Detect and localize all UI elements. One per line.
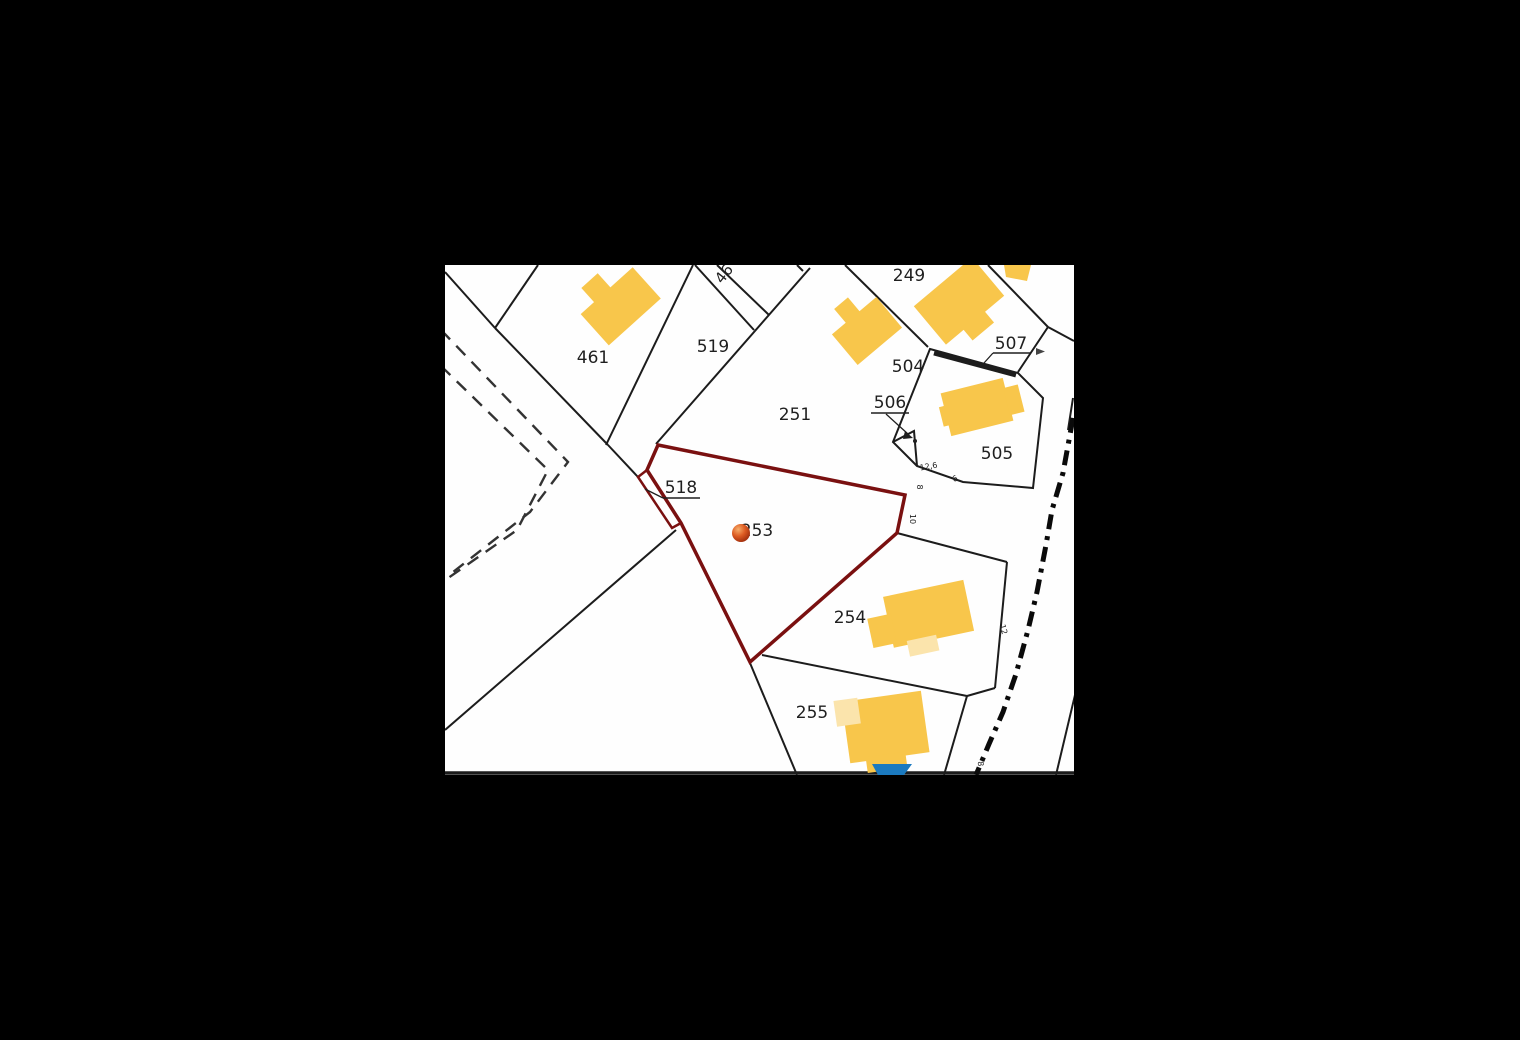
parcel-label-518: 518 — [665, 478, 697, 498]
screenshot-background: 4615192512495045075065055182532542554612… — [0, 0, 1520, 1040]
map-svg: 4615192512495045075065055182532542554612… — [445, 265, 1074, 775]
housenumber-8: 8 — [915, 484, 924, 489]
parcel-label-506: 506 — [874, 393, 906, 413]
cadastral-map[interactable]: 4615192512495045075065055182532542554612… — [445, 265, 1074, 775]
parcel-label-504: 504 — [892, 357, 924, 377]
parcel-label-507: 507 — [995, 334, 1027, 354]
parcel-label-505: 505 — [981, 444, 1013, 464]
parcel-label-251: 251 — [779, 405, 811, 425]
parcel-label-254: 254 — [834, 608, 866, 628]
map-background — [445, 265, 1074, 775]
parcel-label-255: 255 — [796, 703, 828, 723]
selected-parcel-marker[interactable] — [732, 524, 750, 542]
parcel-label-249: 249 — [893, 266, 925, 286]
parcel-label-519: 519 — [697, 337, 729, 357]
parcel-label-461: 461 — [577, 348, 609, 368]
housenumber-10: 10 — [908, 514, 917, 524]
leader-506-endpoint-dot — [913, 439, 917, 443]
housenumber-8b: 8 — [976, 761, 985, 767]
